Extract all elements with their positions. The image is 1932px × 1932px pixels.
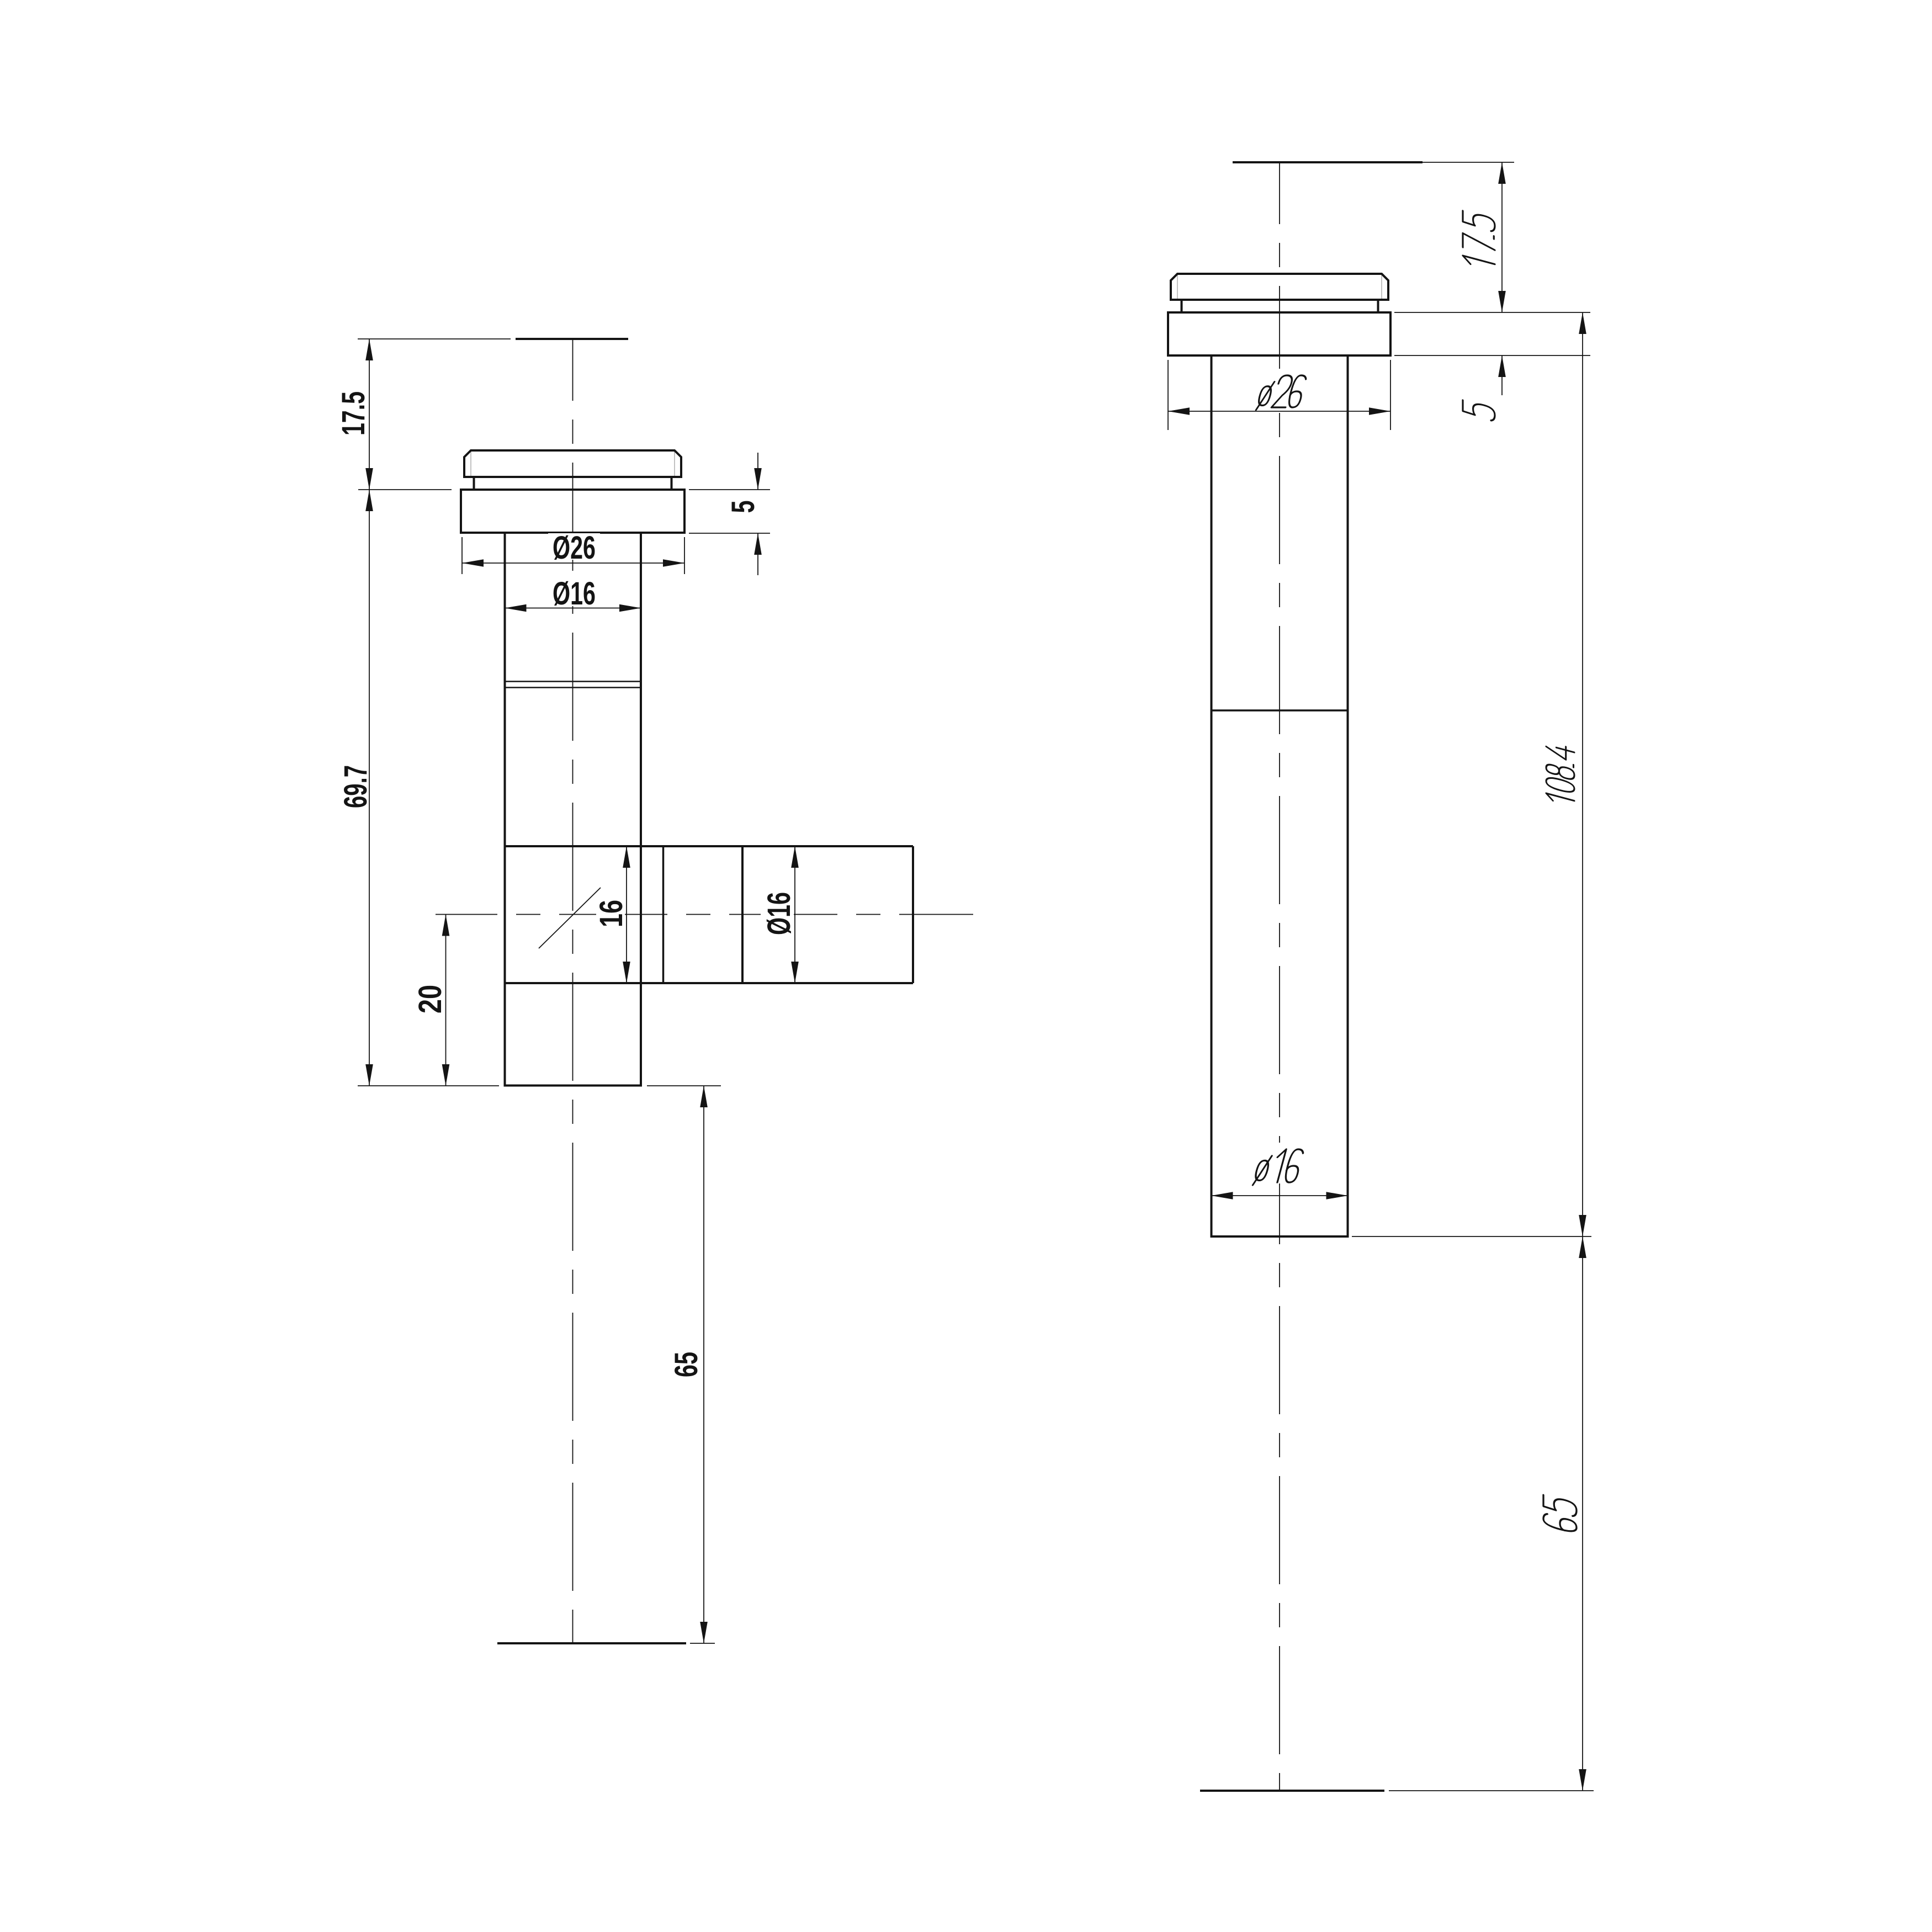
svg-text:20: 20	[412, 985, 448, 1013]
svg-text:Ø16: Ø16	[553, 576, 596, 612]
svg-text:17.5: 17.5	[336, 391, 371, 436]
svg-text:69.7: 69.7	[338, 765, 374, 808]
svg-text:65: 65	[668, 1352, 704, 1377]
svg-text:5: 5	[725, 501, 761, 513]
svg-text:16: 16	[593, 900, 629, 927]
svg-text:Ø16: Ø16	[761, 892, 797, 935]
svg-text:Ø26: Ø26	[553, 530, 596, 566]
